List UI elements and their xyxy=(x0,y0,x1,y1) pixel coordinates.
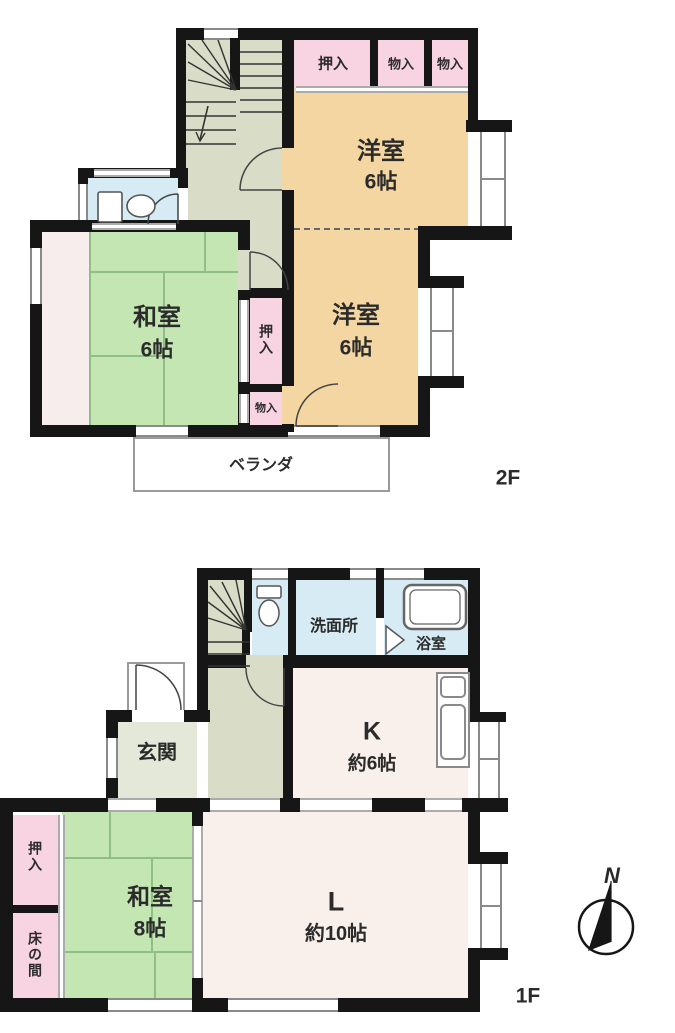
label-storage-1: 物入 xyxy=(388,58,414,71)
label-western-upper-size: 6帖 xyxy=(365,172,398,193)
label-closet-top: 押入 xyxy=(318,57,348,72)
label-storage-2: 物入 xyxy=(437,58,463,71)
toilet-icon-1f xyxy=(257,586,281,626)
toilet-door-arc-1f xyxy=(246,668,284,706)
plan-icons-overlay xyxy=(0,0,675,1033)
label-western-lower-size: 6帖 xyxy=(340,338,373,359)
label-living-size: 約10帖 xyxy=(305,924,367,944)
label-kitchen-name: K xyxy=(363,720,381,745)
label-alcove: 床の間 xyxy=(28,931,42,979)
label-storage-mid: 物入 xyxy=(255,404,277,415)
entrance-door-arc xyxy=(136,665,181,710)
floor-plan: 押入 物入 物入 洋室 6帖 洋室 6帖 和室 6帖 押入 物入 ベランダ 2F… xyxy=(0,0,675,1033)
label-floor-1f: 1F xyxy=(516,986,541,1007)
toilet-icon-2f xyxy=(98,192,155,222)
label-entrance: 玄関 xyxy=(137,743,177,763)
label-japanese-2f-size: 6帖 xyxy=(141,340,174,361)
label-japanese-2f-name: 和室 xyxy=(133,306,181,330)
label-japanese-1f-name: 和室 xyxy=(127,886,173,909)
label-japanese-1f-size: 8帖 xyxy=(134,919,167,940)
japanese-door-arc xyxy=(250,252,288,290)
door-arcs-1f xyxy=(136,665,284,710)
label-veranda: ベランダ xyxy=(229,458,293,474)
label-closet-1f: 押入 xyxy=(28,841,42,873)
western-lower-door-arc xyxy=(296,384,338,426)
label-kitchen-size: 約6帖 xyxy=(348,755,397,774)
label-compass-north: N xyxy=(604,865,620,887)
staircase-2f-icon xyxy=(186,40,282,144)
staircase-1f-icon xyxy=(208,580,250,666)
label-western-lower-name: 洋室 xyxy=(332,304,380,328)
western-upper-door-arc xyxy=(240,148,282,190)
folding-door-icon xyxy=(386,626,404,654)
label-western-upper-name: 洋室 xyxy=(357,140,405,164)
label-floor-2f: 2F xyxy=(496,468,521,489)
bathtub-icon xyxy=(404,585,466,629)
label-washroom: 洗面所 xyxy=(310,619,358,635)
door-arcs-2f xyxy=(148,148,338,426)
label-closet-mid: 押入 xyxy=(259,324,273,356)
compass-icon xyxy=(579,881,633,954)
label-bathroom: 浴室 xyxy=(416,637,446,652)
label-living-name: L xyxy=(328,889,345,916)
